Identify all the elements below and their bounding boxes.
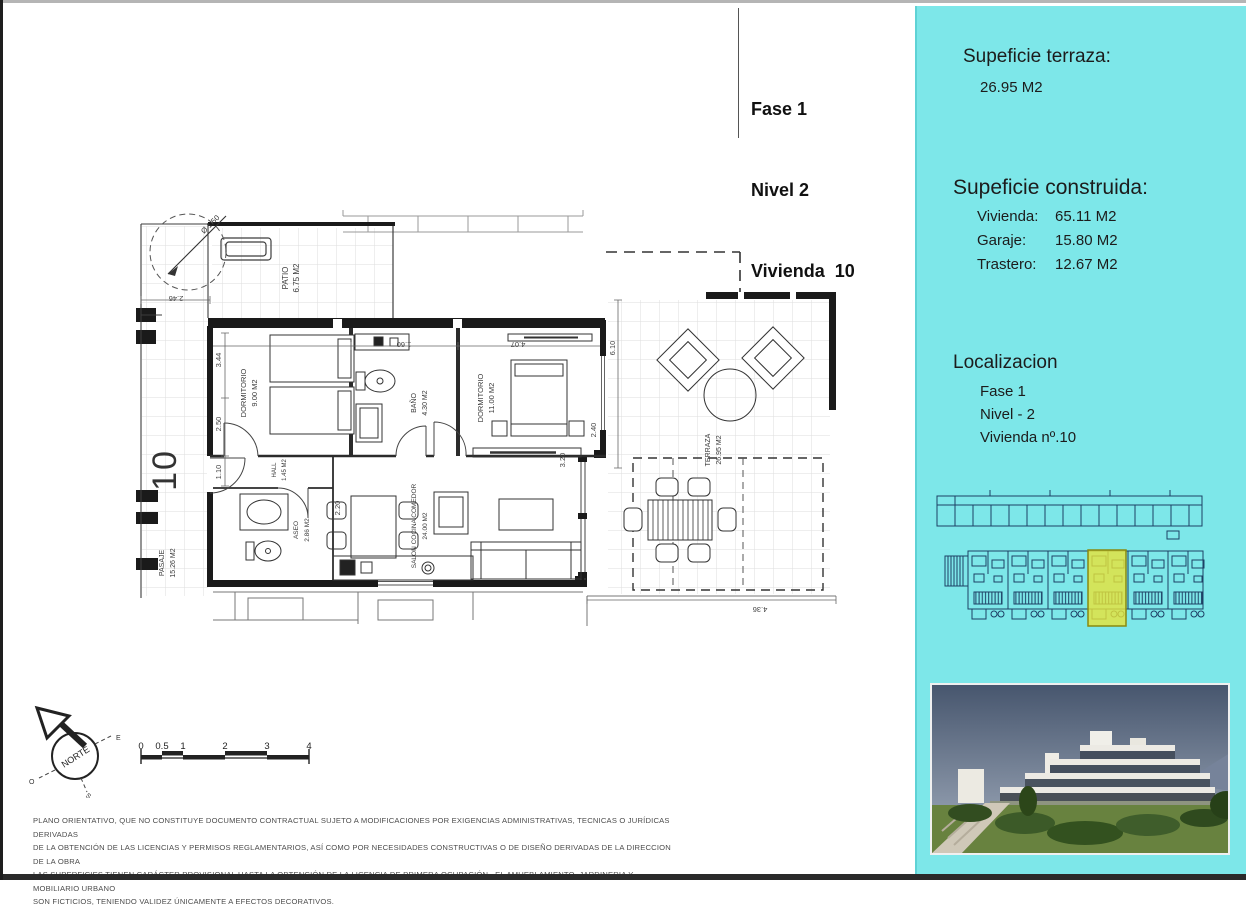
dim-patio: 2.46 [169, 294, 184, 303]
terraza-area: 26.95 M2 [716, 435, 723, 464]
pasaje-tiles [142, 226, 208, 596]
aseo-name: ASEO [293, 521, 300, 539]
building-photo [930, 683, 1230, 855]
scale-ticks: 0 0.5 1 2 3 4 [138, 741, 311, 752]
unit-number-label: 10 [146, 449, 184, 491]
north-arrow-icon: NORTE E O S [23, 700, 133, 798]
aseo-fixtures [240, 494, 288, 561]
bano-fixtures [355, 334, 409, 442]
disclaimer-line-2: DE LA OBTENCIÓN DE LAS LICENCIAS Y PERMI… [33, 841, 673, 868]
scale-2: 2 [222, 741, 227, 752]
lower-neighbor-walls [213, 592, 836, 626]
info-panel: Supeficie terraza: 26.95 M2 Supeficie co… [915, 6, 1246, 874]
built-label-garaje: Garaje: [977, 232, 1055, 249]
dim-110: 1.10 [214, 465, 223, 480]
dorm1-name: DORMITORIO [239, 369, 248, 418]
title-block-rule [738, 8, 739, 138]
pasaje-name: PASAJE [159, 550, 166, 577]
compass-west: O [29, 779, 35, 786]
site-highlighted-unit [1088, 550, 1126, 626]
built-row-garaje: Garaje:15.80 M2 [977, 232, 1177, 249]
plan-sheet: { "title_block": { "line1": "Fase 1", "l… [0, 0, 1246, 880]
scale-bar: 0 0.5 1 2 3 4 [135, 738, 320, 772]
salon-glass-wall [578, 456, 587, 580]
salon-area: 24.00 M2 [422, 512, 429, 539]
built-value-garaje: 15.80 M2 [1055, 232, 1118, 249]
dim-407: 4.07 [511, 340, 526, 349]
dim-240: 2.40 [589, 423, 598, 438]
dim-436: 4.36 [753, 605, 768, 614]
salon-name: SALON COCINA COMEDOR [411, 483, 418, 568]
terraza-name: TERRAZA [705, 433, 712, 466]
scale-1: 1 [180, 741, 185, 752]
dorm1-beds [270, 335, 354, 434]
built-value-trastero: 12.67 M2 [1055, 256, 1118, 273]
dim-344: 3.44 [214, 353, 223, 368]
patio-name: PATIO [281, 267, 290, 290]
scan-top-edge [3, 0, 1246, 3]
dorm1-area: 9.00 M2 [250, 379, 259, 406]
disclaimer-line-1: PLANO ORIENTATIVO, QUE NO CONSTITUYE DOC… [33, 814, 673, 841]
bano-name: BAÑO [409, 393, 418, 413]
built-value-vivienda: 65.11 M2 [1055, 208, 1116, 225]
location-line-1: Fase 1 [980, 383, 1026, 400]
compass-south: S [84, 792, 92, 798]
hall-area: 1.45 M2 [282, 459, 288, 481]
terrace-value: 26.95 M2 [980, 79, 1043, 96]
aseo-area: 2.86 M2 [304, 518, 311, 542]
bano-area: 4.30 M2 [422, 390, 429, 415]
site-plan-diagram [930, 484, 1230, 632]
scale-05: 0.5 [155, 741, 168, 752]
location-heading: Localizacion [953, 352, 1058, 374]
dorm2-area: 11.00 M2 [487, 383, 496, 414]
built-row-vivienda: Vivienda:65.11 M2 [977, 208, 1177, 225]
disclaimer-line-3: LAS SUPERFICIES TIENEN CARÁCTER PROVISIO… [33, 868, 673, 895]
built-label-trastero: Trastero: [977, 256, 1055, 273]
location-line-2: Nivel - 2 [980, 406, 1035, 423]
terrace-heading: Supeficie terraza: [963, 46, 1111, 68]
disclaimer-text: PLANO ORIENTATIVO, QUE NO CONSTITUYE DOC… [33, 814, 673, 909]
scan-bottom-edge [3, 874, 1246, 880]
disclaimer-line-4: SON FICTICIOS, TENIENDO VALIDEZ ÚNICAMEN… [33, 895, 673, 909]
title-nivel: Nivel 2 [751, 177, 855, 204]
title-fase: Fase 1 [751, 96, 855, 123]
site-garage-row [937, 490, 1202, 539]
hall-name: HALL [272, 462, 278, 478]
dorm2-bed [492, 334, 592, 436]
location-line-3: Vivienda nº.10 [980, 429, 1076, 446]
built-heading: Supeficie construida: [953, 176, 1148, 200]
dorm2-name: DORMITORIO [476, 374, 485, 423]
compass-east: E [116, 735, 121, 742]
dim-610: 6.10 [608, 341, 617, 356]
scale-3: 3 [264, 741, 269, 752]
kitchen-counter [333, 556, 473, 580]
built-row-trastero: Trastero:12.67 M2 [977, 256, 1177, 273]
dim-160: 1.60 [397, 340, 412, 349]
salon-furniture [327, 448, 581, 579]
floor-plan: Ø 1.50 [128, 208, 848, 628]
built-label-vivienda: Vivienda: [977, 208, 1055, 225]
pasaje-area: 15.26 M2 [170, 548, 177, 577]
patio-area: 6.75 M2 [292, 263, 301, 292]
dim-220: 2.20 [333, 501, 342, 516]
dim-320: 3.20 [558, 453, 567, 468]
dim-250: 2.50 [214, 417, 223, 432]
